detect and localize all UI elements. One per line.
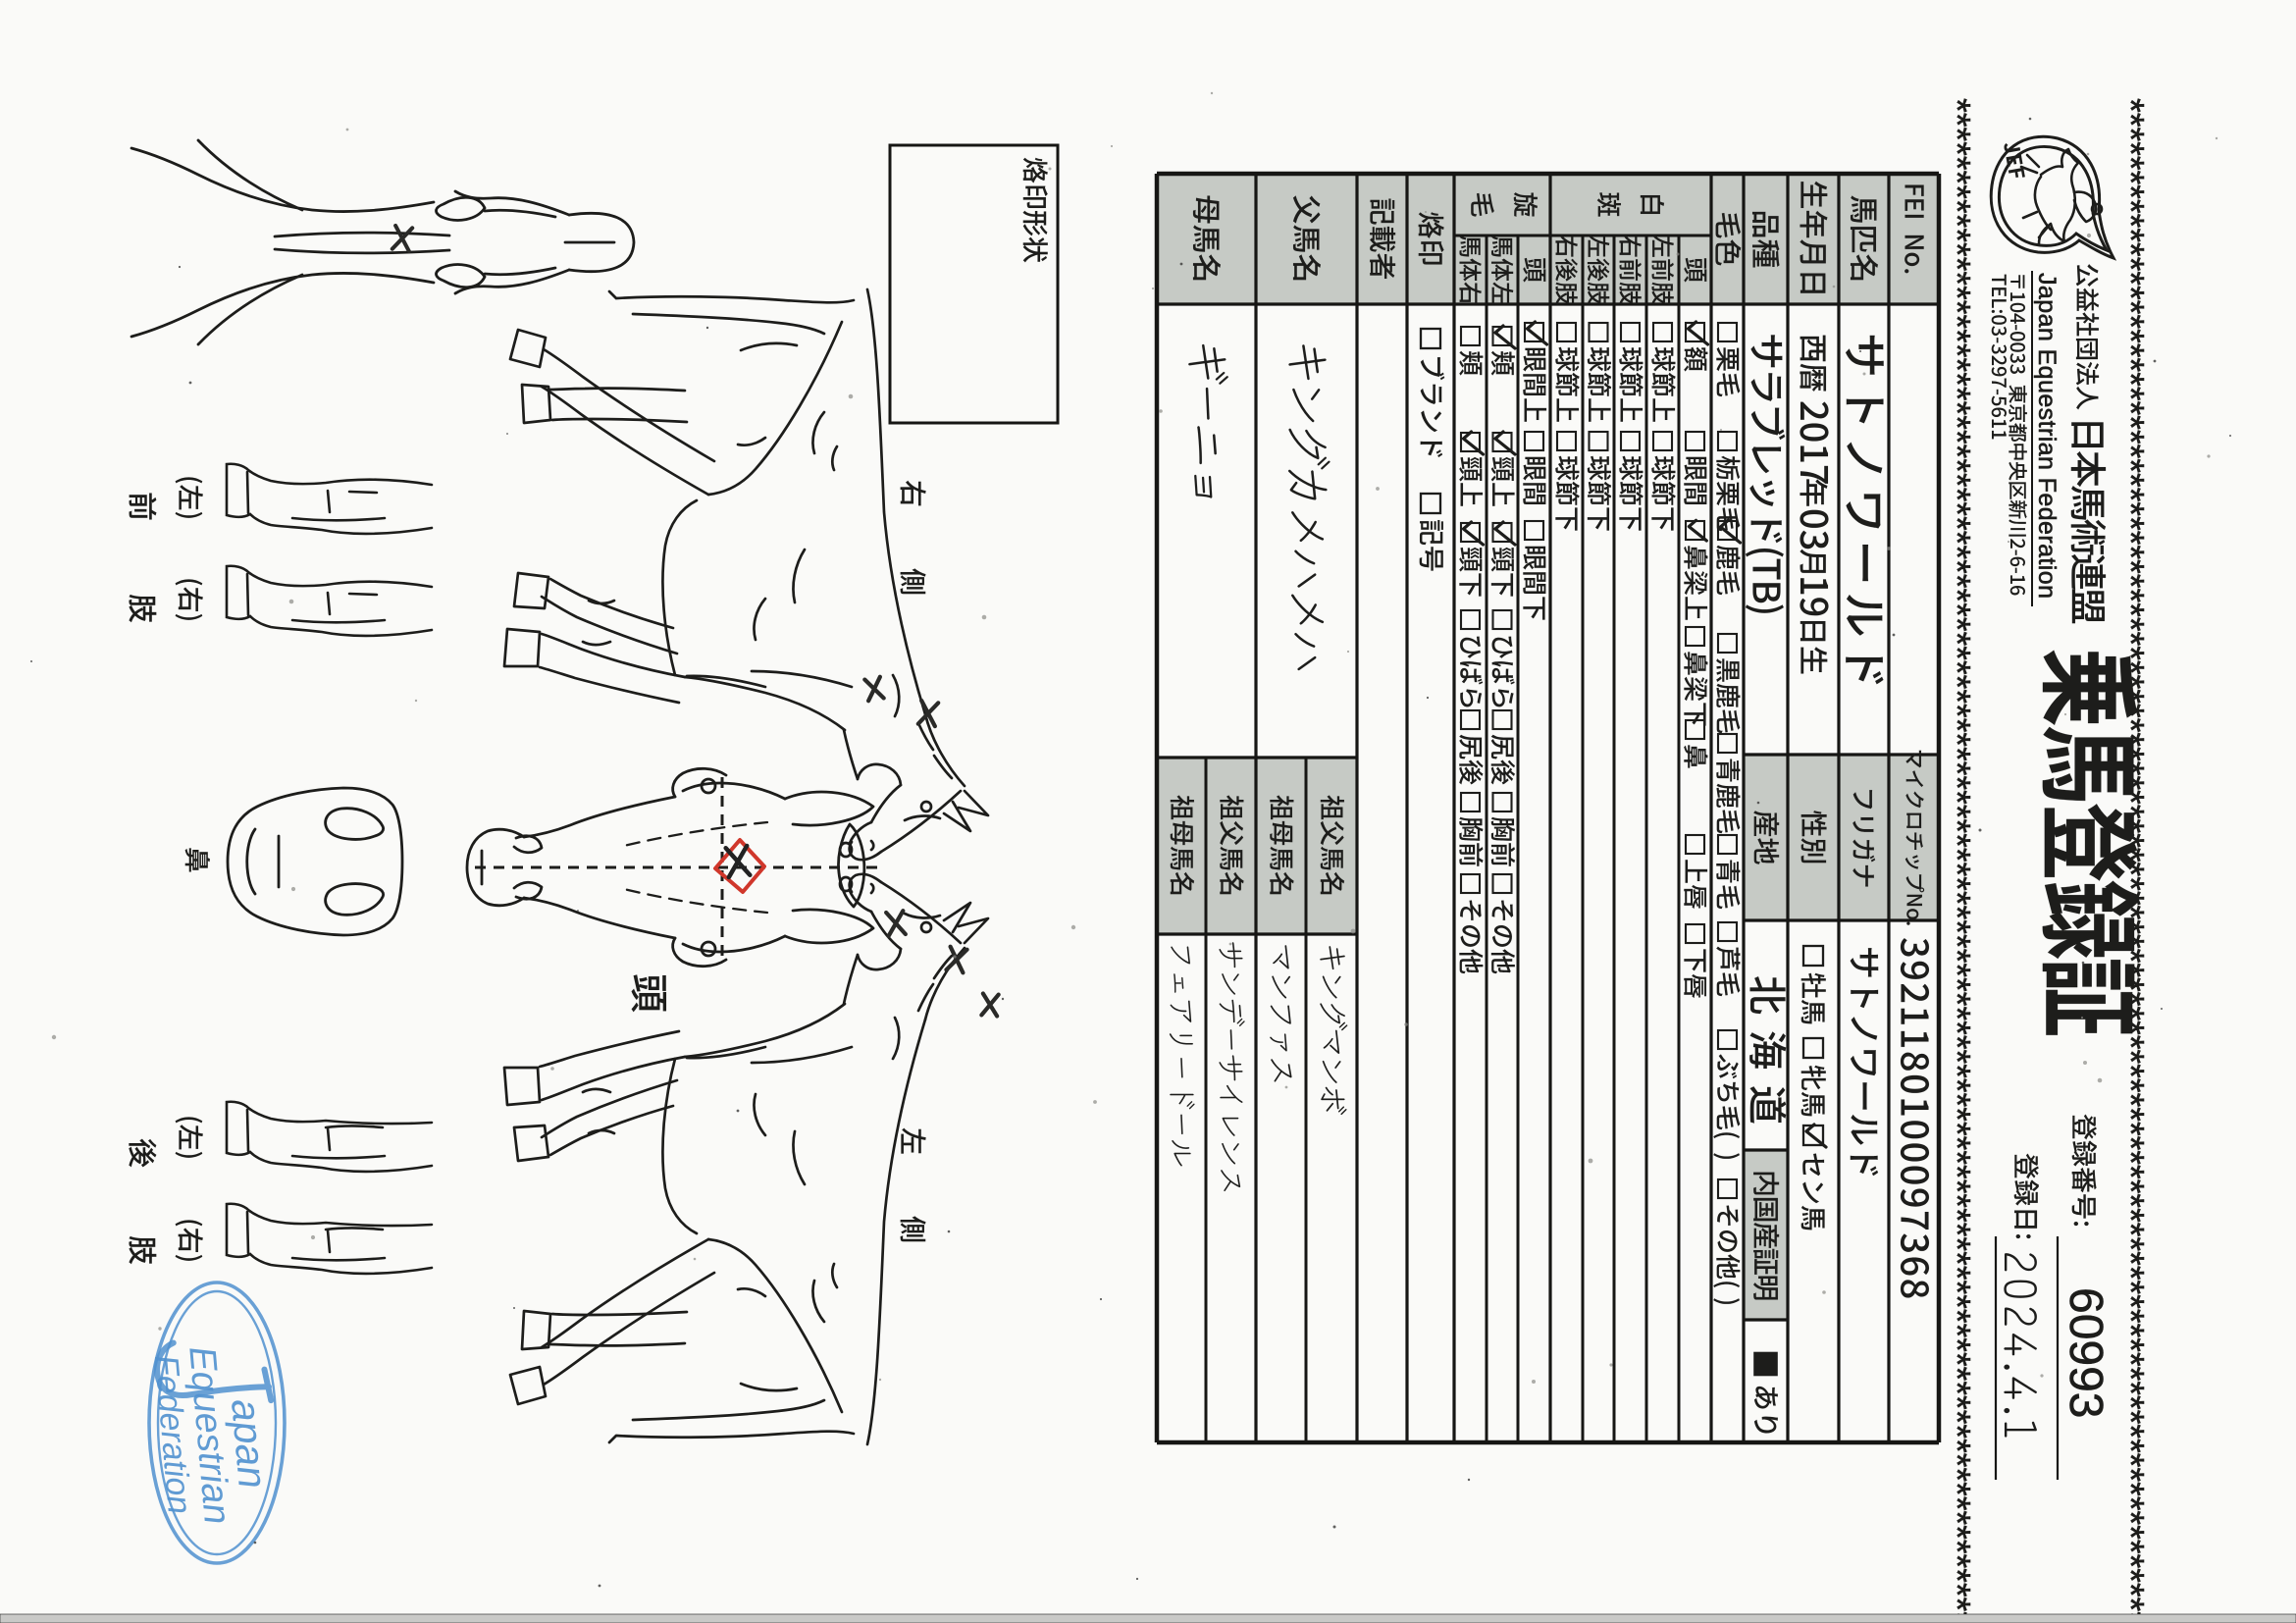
- svg-text:60993: 60993: [2060, 1287, 2112, 1418]
- svg-text:******************************: ****************************************…: [1936, 98, 1977, 1623]
- svg-text:Japan Equestrian Federation: Japan Equestrian Federation: [2033, 273, 2061, 599]
